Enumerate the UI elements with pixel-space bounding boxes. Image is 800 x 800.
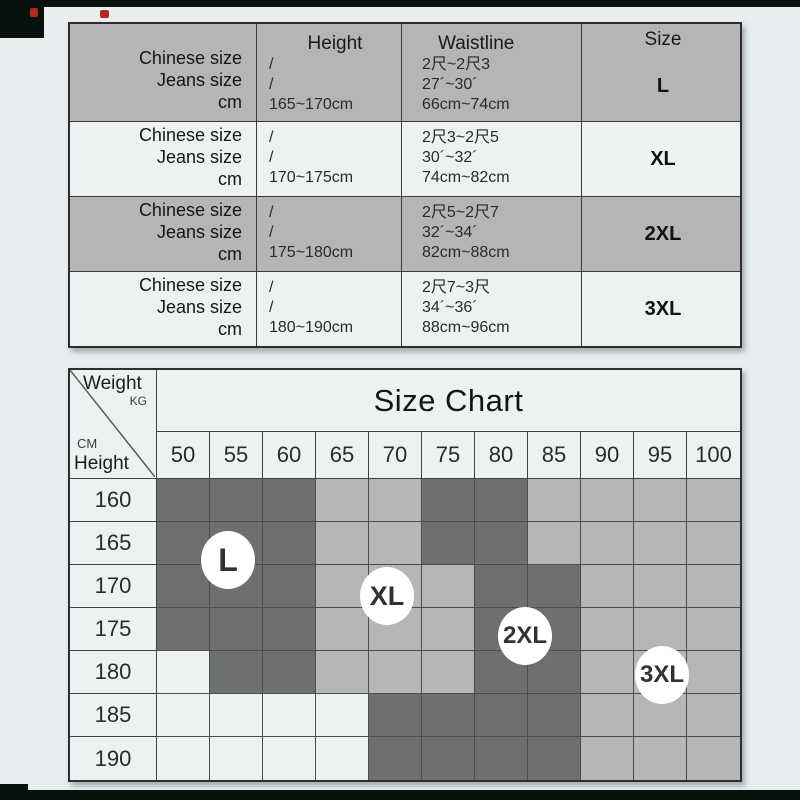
waistline-lines: 2尺7~3尺34´~36´88cm~96cm bbox=[422, 278, 581, 338]
size-value: 3XL bbox=[645, 298, 682, 321]
grid-cell bbox=[422, 694, 475, 737]
row-header-line: Chinese size bbox=[70, 124, 242, 146]
grid-cell bbox=[157, 608, 210, 651]
grid-cell bbox=[687, 565, 740, 608]
height-row-label: 170 bbox=[70, 565, 157, 608]
row-header-lines: Chinese sizeJeans sizecm bbox=[70, 274, 242, 340]
height-value-line: / bbox=[269, 55, 401, 75]
table-row: Chinese sizeJeans sizecmHeight//165~170c… bbox=[70, 24, 740, 122]
size-cell: XL bbox=[582, 122, 744, 196]
waistline-value-line: 2尺5~2尺7 bbox=[422, 203, 581, 223]
row-header-line: Jeans size bbox=[70, 221, 242, 243]
height-lines: //165~170cm bbox=[269, 55, 401, 115]
size-value-wrap: L bbox=[582, 51, 744, 121]
size-region-label-l: L bbox=[201, 531, 255, 589]
height-value-line: / bbox=[269, 298, 401, 318]
height-value-line: / bbox=[269, 148, 401, 168]
row-header-line: Jeans size bbox=[70, 69, 242, 91]
weight-header-cell: 85 bbox=[528, 432, 581, 479]
grid-cell bbox=[687, 479, 740, 522]
row-header-line: cm bbox=[70, 168, 242, 190]
grid-cell bbox=[475, 694, 528, 737]
grid-cell bbox=[422, 522, 475, 565]
grid-cell bbox=[581, 737, 634, 780]
waistline-column-header: Waistline bbox=[422, 28, 581, 55]
height-value-line: / bbox=[269, 223, 401, 243]
size-value-wrap: XL bbox=[582, 122, 744, 196]
table-row: Chinese sizeJeans sizecm//170~175cm2尺3~2… bbox=[70, 122, 740, 197]
grid-cell bbox=[263, 694, 316, 737]
top-frame-bar bbox=[0, 0, 800, 7]
grid-cell bbox=[369, 694, 422, 737]
size-column-header: Size bbox=[582, 24, 744, 51]
grid-cell bbox=[422, 479, 475, 522]
x-axis-label: Weight bbox=[83, 373, 142, 395]
row-header-line: Jeans size bbox=[70, 146, 242, 168]
height-value-line: / bbox=[269, 128, 401, 148]
grid-cell bbox=[687, 522, 740, 565]
row-header-line: cm bbox=[70, 243, 242, 265]
height-row-label: 185 bbox=[70, 694, 157, 737]
red-artifact-1 bbox=[30, 8, 38, 17]
grid-cell bbox=[634, 565, 687, 608]
bottom-left-corner-block bbox=[0, 784, 28, 800]
grid-cell bbox=[369, 737, 422, 780]
size-region-label-xl: XL bbox=[360, 567, 414, 625]
grid-cell bbox=[422, 608, 475, 651]
grid-cell bbox=[157, 565, 210, 608]
grid-cell bbox=[263, 565, 316, 608]
height-value-line: 165~170cm bbox=[269, 95, 401, 115]
height-cell: //180~190cm bbox=[257, 272, 402, 346]
chart-title: Size Chart bbox=[157, 370, 740, 432]
grid-cell bbox=[263, 522, 316, 565]
row-header-lines: Chinese sizeJeans sizecm bbox=[70, 199, 242, 265]
grid-cell bbox=[528, 694, 581, 737]
height-value-line: 180~190cm bbox=[269, 318, 401, 338]
size-table: Chinese sizeJeans sizecmHeight//165~170c… bbox=[68, 22, 742, 348]
height-cell: //170~175cm bbox=[257, 122, 402, 196]
table-row: Chinese sizeJeans sizecm//180~190cm2尺7~3… bbox=[70, 272, 740, 346]
grid-cell bbox=[528, 479, 581, 522]
grid-cell bbox=[422, 737, 475, 780]
waistline-value-line: 27´~30´ bbox=[422, 75, 581, 95]
waistline-value-line: 2尺~2尺3 bbox=[422, 55, 581, 75]
red-artifact-2 bbox=[100, 10, 109, 18]
grid-cell bbox=[581, 651, 634, 694]
grid-cell bbox=[263, 479, 316, 522]
grid-cell bbox=[210, 651, 263, 694]
grid-cell bbox=[316, 522, 369, 565]
grid-cell bbox=[316, 651, 369, 694]
height-value-line: 170~175cm bbox=[269, 168, 401, 188]
y-axis-label: Height bbox=[74, 453, 129, 475]
grid-cell bbox=[157, 694, 210, 737]
grid-cell bbox=[263, 608, 316, 651]
waistline-lines: 2尺3~2尺530´~32´74cm~82cm bbox=[422, 128, 581, 188]
size-value: L bbox=[657, 75, 669, 98]
waistline-cell: 2尺3~2尺530´~32´74cm~82cm bbox=[402, 122, 582, 196]
grid-cell bbox=[687, 651, 740, 694]
grid-cell bbox=[581, 479, 634, 522]
bottom-frame-bar bbox=[0, 790, 800, 800]
grid-cell bbox=[528, 565, 581, 608]
row-header-lines: Chinese sizeJeans sizecm bbox=[70, 47, 242, 113]
weight-header-cell: 50 bbox=[157, 432, 210, 479]
height-value-line: / bbox=[269, 75, 401, 95]
grid-cell bbox=[263, 737, 316, 780]
row-header-line: Chinese size bbox=[70, 199, 242, 221]
grid-cell bbox=[581, 608, 634, 651]
size-region-label-3xl: 3XL bbox=[635, 646, 689, 704]
waistline-cell: 2尺7~3尺34´~36´88cm~96cm bbox=[402, 272, 582, 346]
waistline-value-line: 66cm~74cm bbox=[422, 95, 581, 115]
grid-cell bbox=[475, 565, 528, 608]
grid-cell bbox=[210, 608, 263, 651]
waistline-lines: 2尺5~2尺732´~34´82cm~88cm bbox=[422, 203, 581, 263]
waistline-value-line: 2尺3~2尺5 bbox=[422, 128, 581, 148]
row-header-cell: Chinese sizeJeans sizecm bbox=[70, 272, 257, 346]
weight-header-cell: 75 bbox=[422, 432, 475, 479]
grid-cell bbox=[369, 522, 422, 565]
size-value-wrap: 2XL bbox=[582, 197, 744, 271]
grid-cell bbox=[369, 479, 422, 522]
size-cell: 3XL bbox=[582, 272, 744, 346]
grid-cell bbox=[528, 522, 581, 565]
waistline-value-line: 88cm~96cm bbox=[422, 318, 581, 338]
grid-cell bbox=[634, 522, 687, 565]
row-header-line: Jeans size bbox=[70, 296, 242, 318]
weight-header-cell: 90 bbox=[581, 432, 634, 479]
grid-cell bbox=[634, 608, 687, 651]
size-chart: Weight KG CM Height Size Chart 505560657… bbox=[68, 368, 742, 782]
grid-cell bbox=[157, 479, 210, 522]
grid-cell bbox=[475, 737, 528, 780]
size-value: XL bbox=[650, 148, 676, 171]
x-axis-unit: KG bbox=[130, 394, 147, 408]
weight-header-cell: 65 bbox=[316, 432, 369, 479]
size-value: 2XL bbox=[645, 223, 682, 246]
waistline-value-line: 30´~32´ bbox=[422, 148, 581, 168]
size-cell: SizeL bbox=[582, 24, 744, 121]
grid-cell bbox=[581, 565, 634, 608]
row-header-line: Chinese size bbox=[70, 274, 242, 296]
grid-cell bbox=[634, 479, 687, 522]
grid-cell bbox=[687, 694, 740, 737]
waistline-lines: 2尺~2尺327´~30´66cm~74cm bbox=[422, 55, 581, 115]
row-header-line: Chinese size bbox=[70, 47, 242, 69]
height-value-line: 175~180cm bbox=[269, 243, 401, 263]
size-region-label-2xl: 2XL bbox=[498, 607, 552, 665]
waistline-value-line: 32´~34´ bbox=[422, 223, 581, 243]
grid-cell bbox=[157, 737, 210, 780]
height-cell: Height//165~170cm bbox=[257, 24, 402, 121]
height-row-label: 175 bbox=[70, 608, 157, 651]
grid-cell bbox=[581, 694, 634, 737]
size-chart-infographic: Chinese sizeJeans sizecmHeight//165~170c… bbox=[0, 0, 800, 800]
grid-cell bbox=[316, 694, 369, 737]
size-value-wrap: 3XL bbox=[582, 272, 744, 346]
grid-cell bbox=[687, 608, 740, 651]
grid-cell bbox=[316, 737, 369, 780]
height-row-label: 190 bbox=[70, 737, 157, 780]
weight-header-cell: 70 bbox=[369, 432, 422, 479]
row-header-line: cm bbox=[70, 91, 242, 113]
row-header-line: cm bbox=[70, 318, 242, 340]
grid-cell bbox=[475, 479, 528, 522]
weight-header-cell: 95 bbox=[634, 432, 687, 479]
y-axis-unit: CM bbox=[77, 436, 97, 451]
waistline-value-line: 34´~36´ bbox=[422, 298, 581, 318]
grid-cell bbox=[316, 479, 369, 522]
row-header-cell: Chinese sizeJeans sizecm bbox=[70, 122, 257, 196]
grid-cell bbox=[634, 737, 687, 780]
grid-cell bbox=[528, 737, 581, 780]
row-header-lines: Chinese sizeJeans sizecm bbox=[70, 124, 242, 190]
weight-header-cell: 100 bbox=[687, 432, 740, 479]
waistline-cell: 2尺5~2尺732´~34´82cm~88cm bbox=[402, 197, 582, 271]
height-value-line: / bbox=[269, 203, 401, 223]
grid-cell bbox=[316, 608, 369, 651]
height-lines: //175~180cm bbox=[269, 203, 401, 263]
weight-header-cell: 55 bbox=[210, 432, 263, 479]
size-cell: 2XL bbox=[582, 197, 744, 271]
grid-cell bbox=[475, 522, 528, 565]
height-cell: //175~180cm bbox=[257, 197, 402, 271]
height-lines: //170~175cm bbox=[269, 128, 401, 188]
row-header-cell: Chinese sizeJeans sizecm bbox=[70, 24, 257, 121]
height-column-header: Height bbox=[269, 28, 401, 55]
waistline-value-line: 82cm~88cm bbox=[422, 243, 581, 263]
top-left-corner-block bbox=[0, 0, 44, 38]
height-row-label: 180 bbox=[70, 651, 157, 694]
grid-cell bbox=[210, 737, 263, 780]
grid-cell bbox=[687, 737, 740, 780]
axis-corner-cell: Weight KG CM Height bbox=[70, 370, 157, 479]
grid-cell bbox=[210, 479, 263, 522]
height-value-line: / bbox=[269, 278, 401, 298]
grid-cell bbox=[369, 651, 422, 694]
table-row: Chinese sizeJeans sizecm//175~180cm2尺5~2… bbox=[70, 197, 740, 272]
grid-cell bbox=[263, 651, 316, 694]
grid-cell bbox=[210, 694, 263, 737]
waistline-value-line: 2尺7~3尺 bbox=[422, 278, 581, 298]
grid-cell bbox=[422, 651, 475, 694]
waistline-value-line: 74cm~82cm bbox=[422, 168, 581, 188]
height-lines: //180~190cm bbox=[269, 278, 401, 338]
height-row-label: 160 bbox=[70, 479, 157, 522]
row-header-cell: Chinese sizeJeans sizecm bbox=[70, 197, 257, 271]
grid-cell bbox=[422, 565, 475, 608]
weight-header-cell: 60 bbox=[263, 432, 316, 479]
grid-cell bbox=[581, 522, 634, 565]
waistline-cell: Waistline2尺~2尺327´~30´66cm~74cm bbox=[402, 24, 582, 121]
grid-cell bbox=[157, 651, 210, 694]
height-row-label: 165 bbox=[70, 522, 157, 565]
weight-header-cell: 80 bbox=[475, 432, 528, 479]
